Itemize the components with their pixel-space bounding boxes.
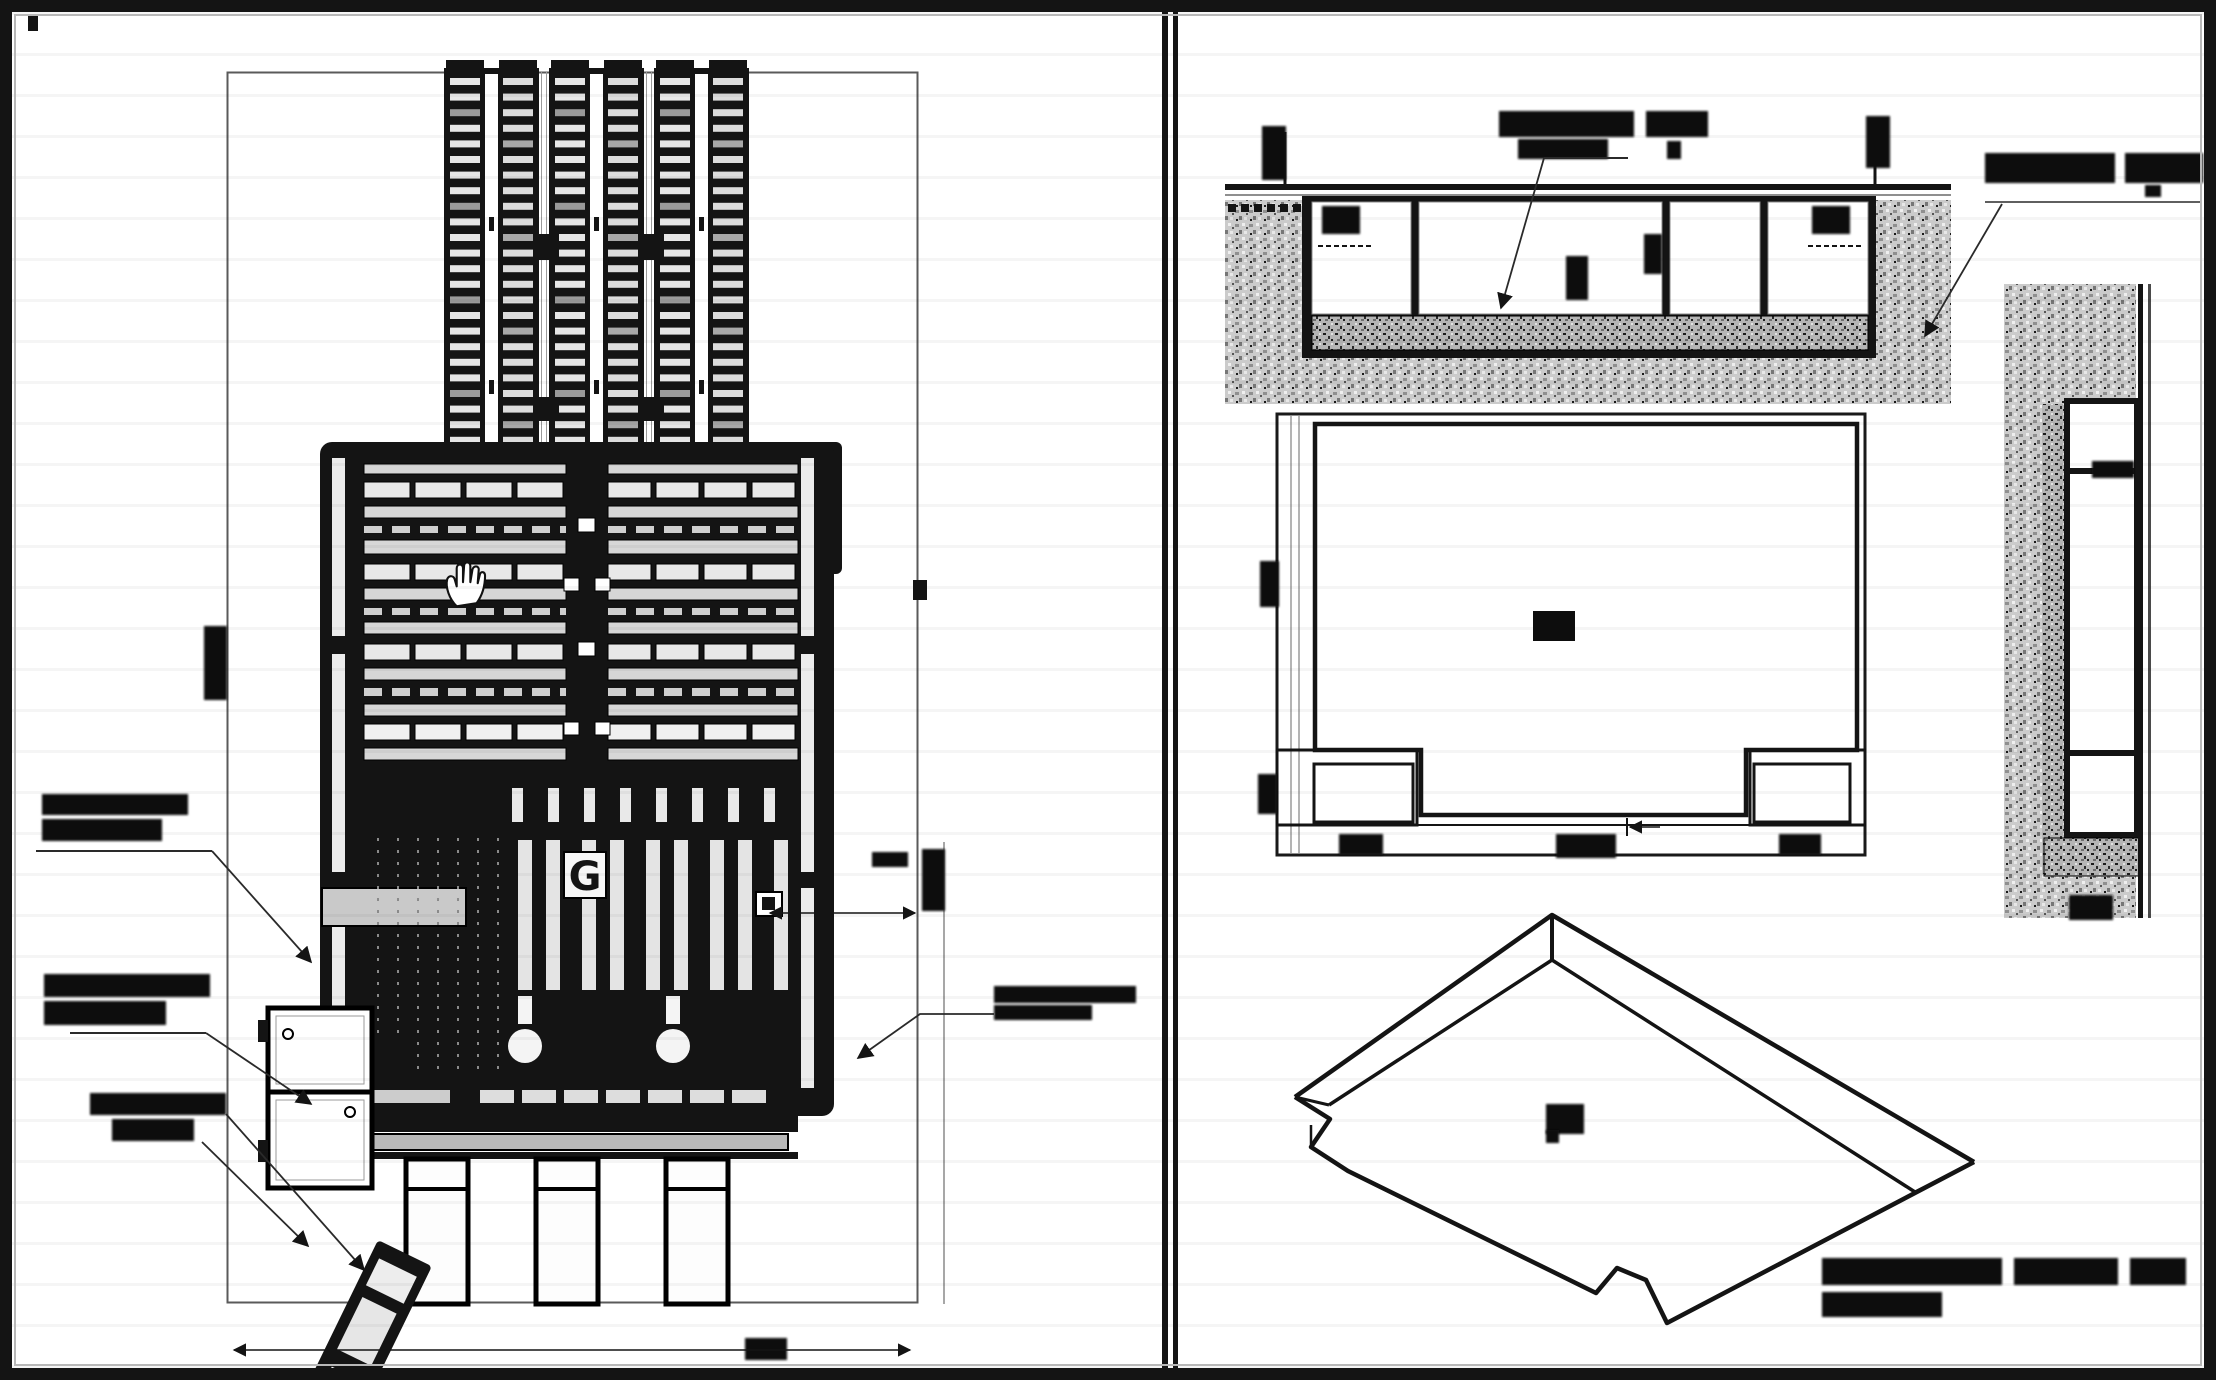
section-2-2-title (2069, 895, 2113, 920)
panel-divider (1162, 12, 1178, 1380)
right-callout-1 (858, 986, 1136, 1058)
left-callout-1 (36, 794, 311, 962)
vertical-channels (518, 840, 788, 990)
top-cell-dim (2092, 461, 2134, 478)
conveyor-tracks (444, 60, 749, 458)
bottom-slat-row (364, 1090, 766, 1103)
corner-tick (28, 16, 38, 31)
drawing-canvas: G (12, 12, 2216, 1380)
pit-isometric (1295, 915, 2186, 1323)
drawing-sheet: G (0, 0, 2216, 1380)
pit-drawings-panel (1225, 111, 2203, 1323)
center-glyph: G (564, 852, 606, 900)
machine-plan-view: G (28, 16, 1136, 1380)
base-plate (350, 1116, 798, 1159)
svg-text:G: G (569, 854, 602, 900)
pit-plan (1258, 414, 1865, 858)
support-legs (406, 1159, 728, 1304)
isometric-center-label (1546, 1104, 1584, 1134)
isometric-caption (1822, 1258, 2186, 1317)
diagonal-chute (311, 1240, 432, 1380)
side-hatch-bar (322, 888, 466, 926)
plan-center-label (1533, 611, 1575, 641)
machine-body: G (320, 442, 834, 1116)
section-2-2 (2004, 284, 2151, 920)
